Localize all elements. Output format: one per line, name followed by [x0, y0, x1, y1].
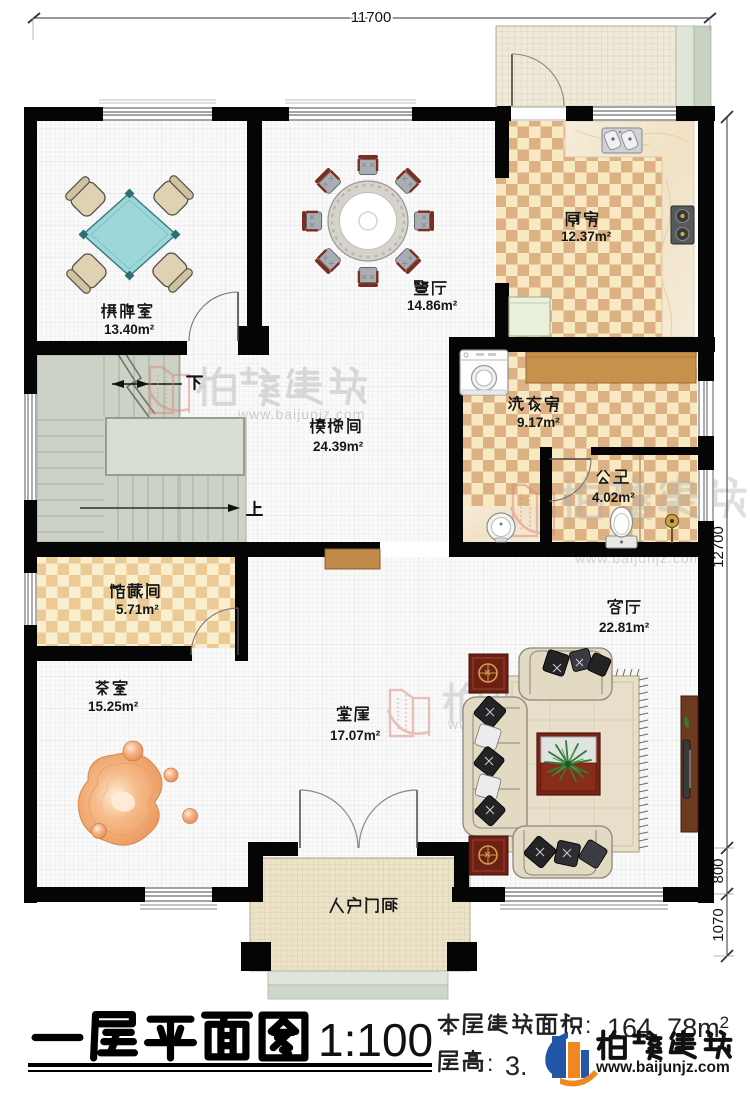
svg-text:www.baijunjz.com: www.baijunjz.com — [595, 1059, 730, 1076]
svg-text:12700: 12700 — [710, 526, 727, 568]
svg-text:1:100: 1:100 — [318, 1014, 433, 1066]
svg-text:1070: 1070 — [710, 908, 727, 941]
svg-text:15.25m²: 15.25m² — [88, 699, 139, 714]
svg-text:9.17m²: 9.17m² — [517, 415, 560, 430]
svg-text:24.39m²: 24.39m² — [313, 439, 364, 454]
svg-text:14.86m²: 14.86m² — [407, 298, 458, 313]
svg-text:17.07m²: 17.07m² — [330, 728, 381, 743]
svg-text:800: 800 — [710, 858, 727, 883]
svg-text:5.71m²: 5.71m² — [116, 602, 159, 617]
svg-text::: : — [487, 1050, 493, 1076]
svg-text:12.37m²: 12.37m² — [561, 229, 612, 244]
svg-text:www.baijunjz.com: www.baijunjz.com — [237, 406, 365, 422]
svg-text:4.02m²: 4.02m² — [592, 490, 635, 505]
svg-text:11700: 11700 — [351, 9, 392, 26]
svg-text::: : — [585, 1012, 591, 1038]
svg-text:3.: 3. — [505, 1051, 528, 1081]
svg-text:22.81m²: 22.81m² — [599, 620, 650, 635]
svg-text:13.40m²: 13.40m² — [104, 322, 155, 337]
